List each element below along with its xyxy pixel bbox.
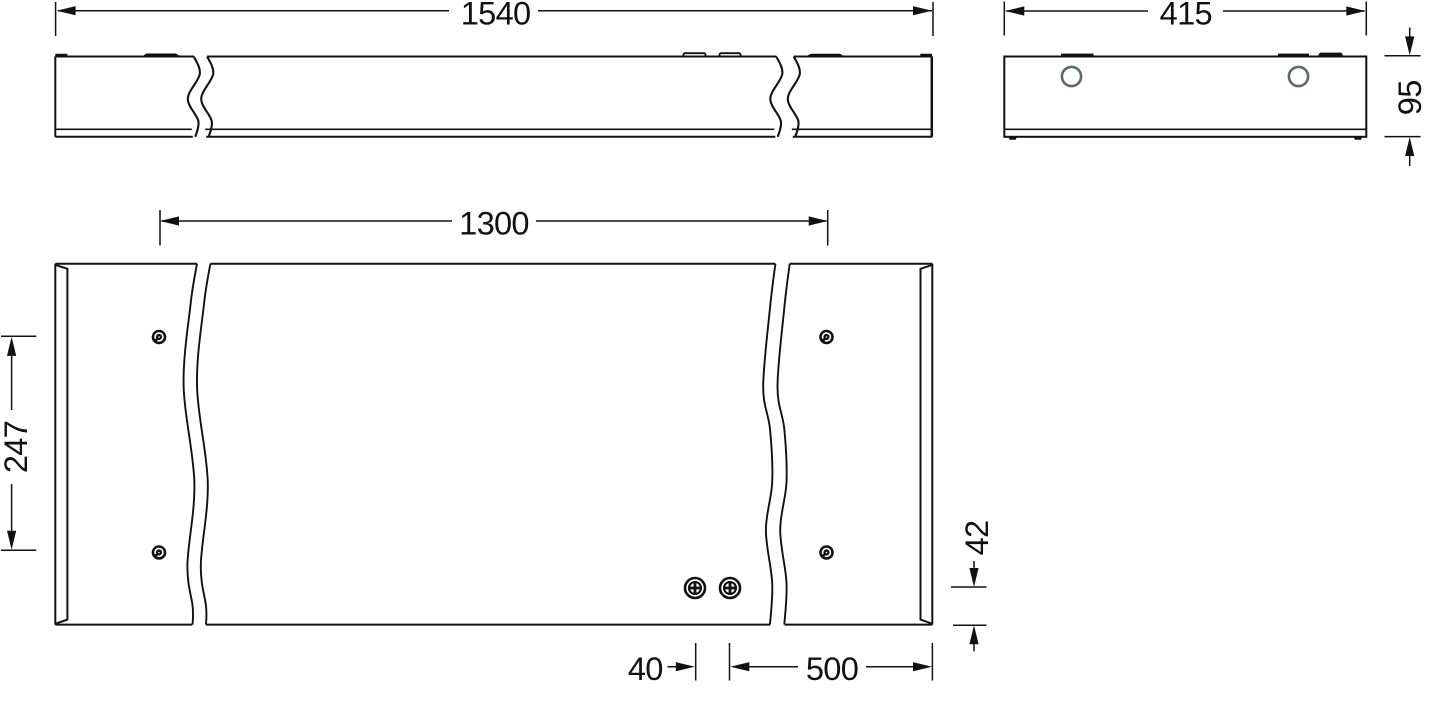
svg-text:247: 247 bbox=[0, 421, 34, 473]
svg-text:95: 95 bbox=[1391, 80, 1428, 115]
svg-text:500: 500 bbox=[806, 650, 858, 687]
svg-text:1540: 1540 bbox=[461, 0, 531, 31]
svg-text:1300: 1300 bbox=[459, 204, 529, 241]
svg-text:42: 42 bbox=[958, 521, 995, 556]
svg-text:415: 415 bbox=[1160, 0, 1212, 31]
svg-text:40: 40 bbox=[628, 650, 663, 687]
